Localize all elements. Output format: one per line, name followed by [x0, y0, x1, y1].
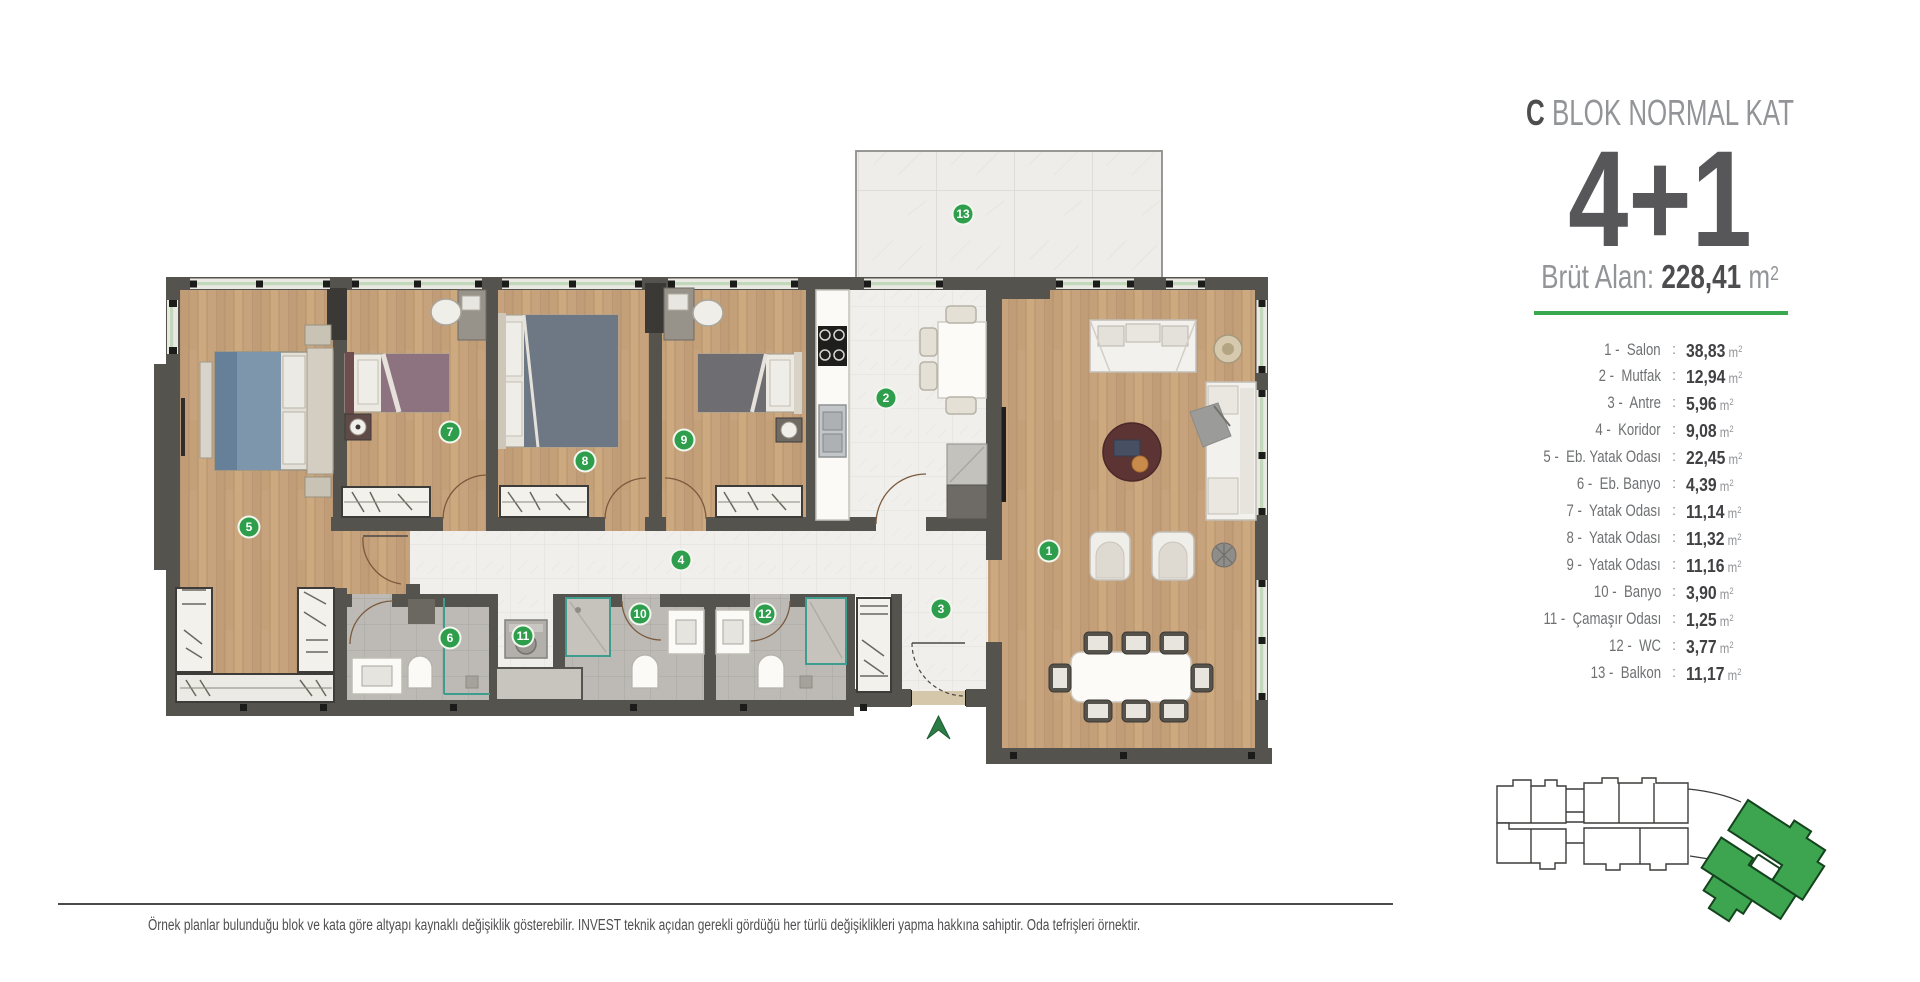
svg-text:6: 6	[447, 631, 454, 645]
svg-text:9: 9	[681, 433, 688, 447]
svg-text:3: 3	[938, 602, 945, 616]
svg-text:7: 7	[447, 425, 454, 439]
svg-text:1: 1	[1046, 544, 1053, 558]
svg-text:5: 5	[246, 520, 253, 534]
svg-text:8: 8	[582, 454, 589, 468]
svg-text:12: 12	[758, 607, 772, 621]
svg-text:10: 10	[633, 607, 647, 621]
svg-text:4: 4	[678, 553, 685, 567]
svg-text:13: 13	[956, 207, 970, 221]
svg-text:11: 11	[517, 629, 530, 643]
svg-text:2: 2	[883, 391, 890, 405]
